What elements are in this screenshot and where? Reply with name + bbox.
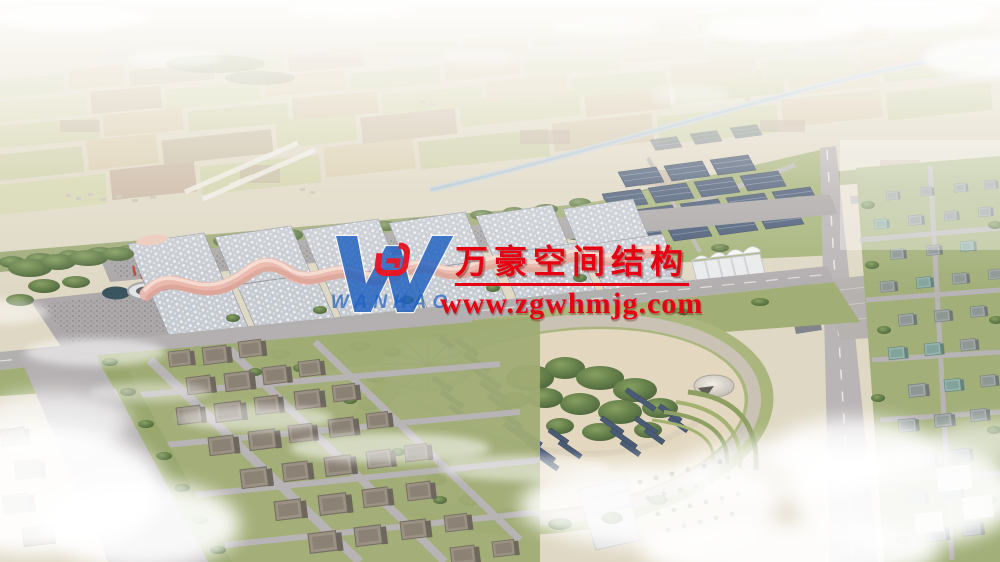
aerial-rendering: WANHAO 万豪空间结构 www.zgwhmjg.com — [0, 0, 1000, 562]
scene-rendering — [0, 0, 1000, 562]
